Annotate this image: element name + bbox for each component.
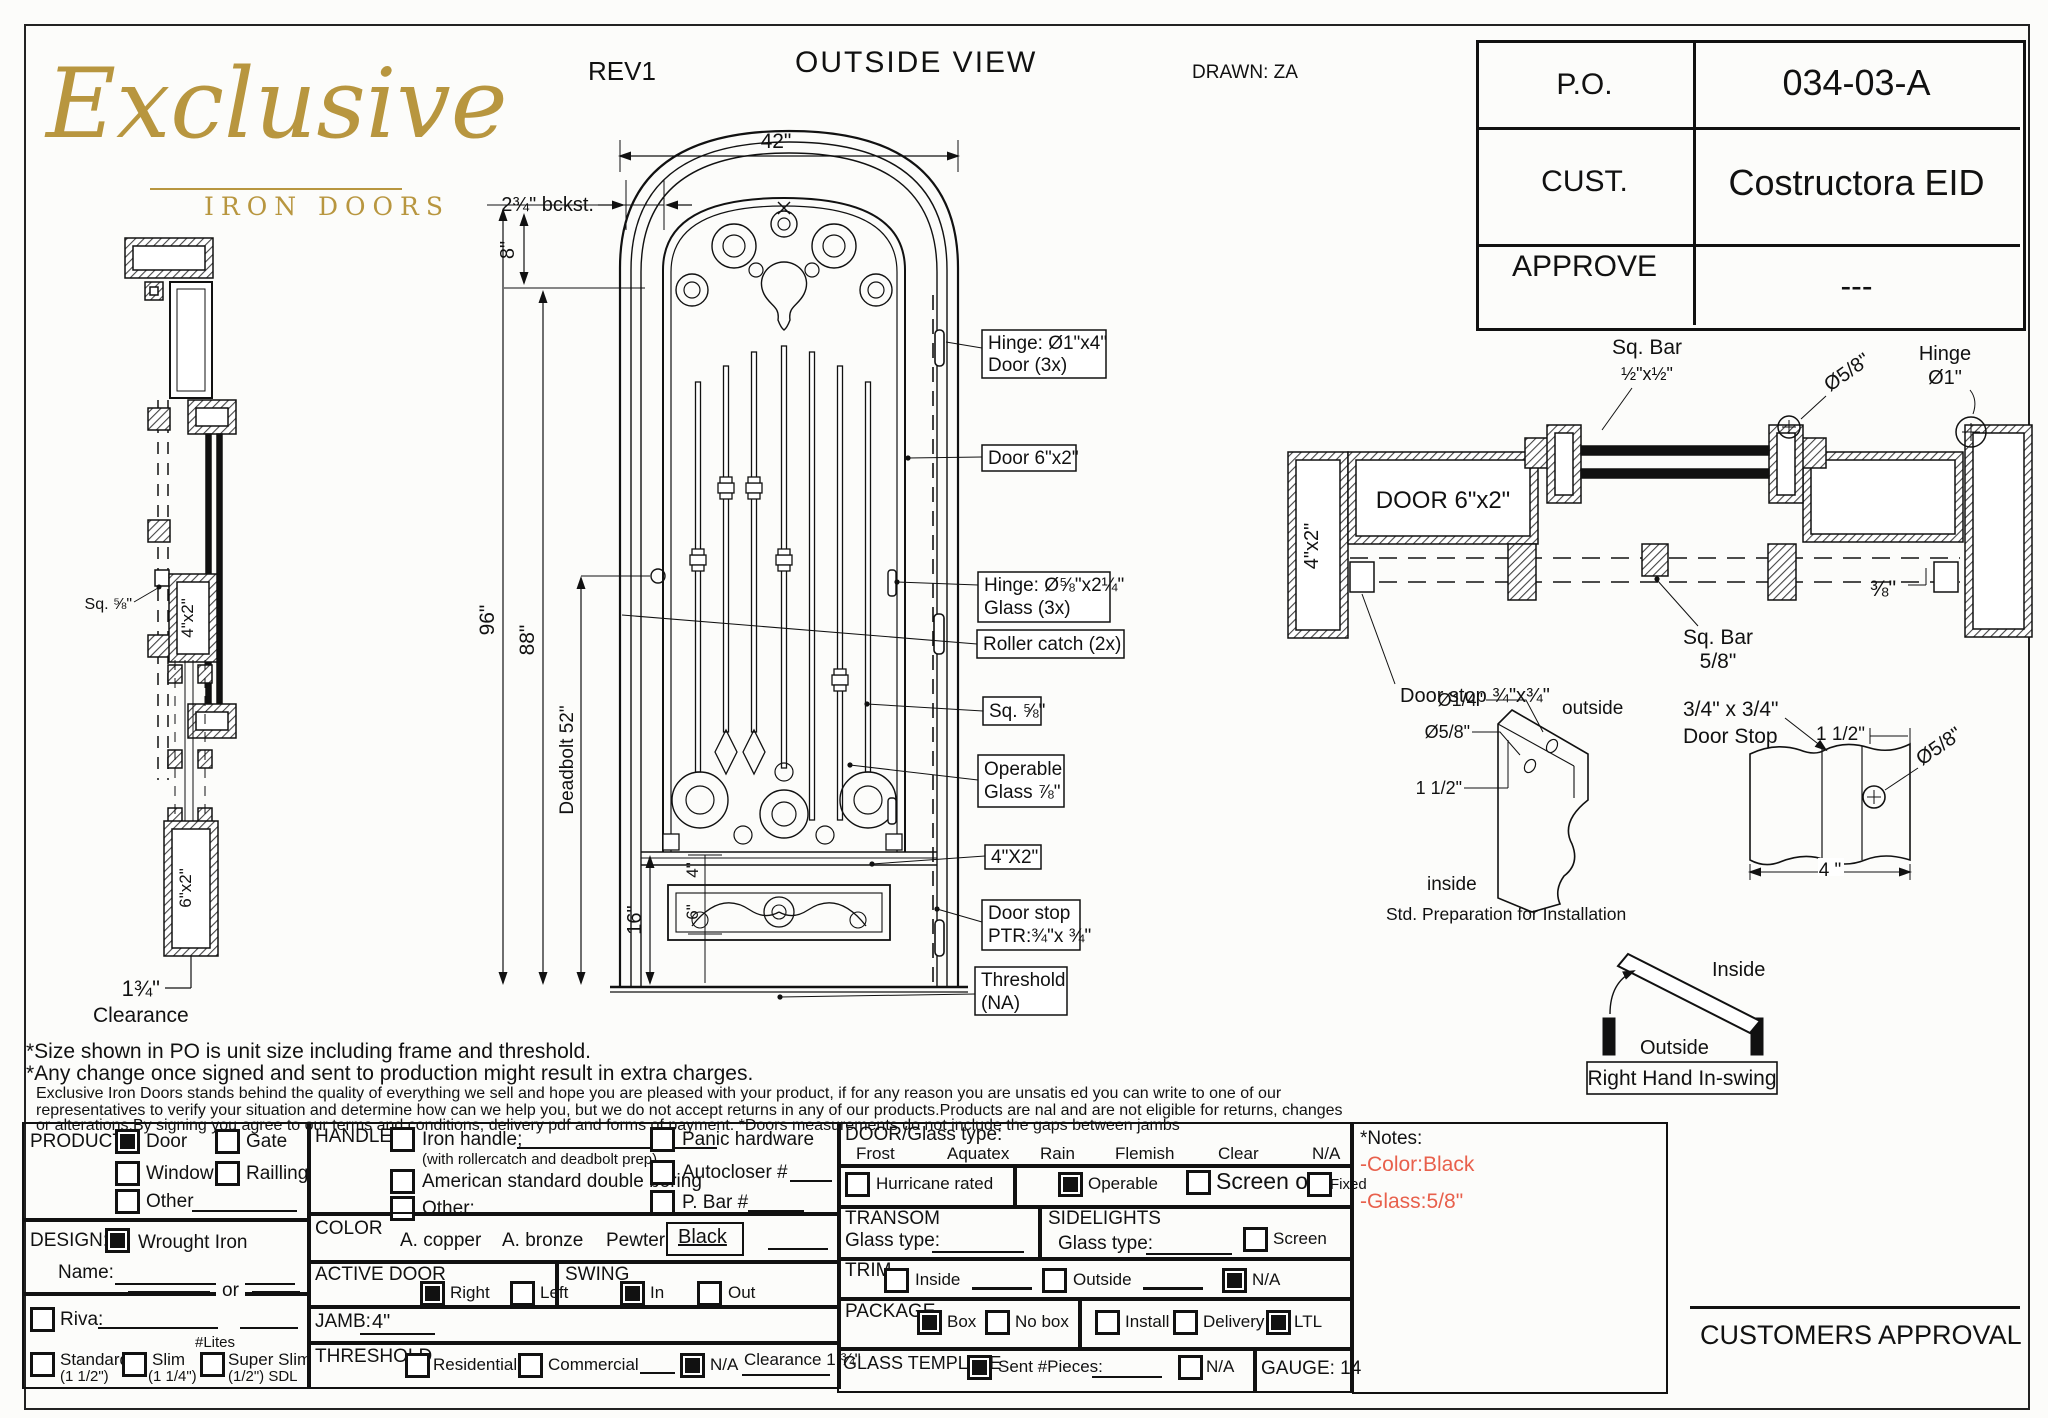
active-right-checkbox[interactable] [420, 1281, 445, 1306]
design-or-label: or [216, 1280, 245, 1302]
product-other-label: Other [146, 1191, 194, 1213]
product-railling-label: Railling [246, 1163, 308, 1185]
section-jamb-label: 4"x2" [1301, 523, 1323, 569]
notes-title: *Notes: [1360, 1128, 1422, 1150]
standard-sub: (1 1/2") [60, 1368, 109, 1385]
jamb-label: JAMB: [315, 1311, 371, 1333]
callout-hinge-glass: Hinge: Ø⅝"x2¼" [984, 575, 1124, 596]
section-sqbar-top-size: ½"x½" [1621, 364, 1673, 384]
jamb-value[interactable]: 4" [372, 1311, 390, 1334]
handle-label: HANDLE [315, 1126, 392, 1148]
product-railling-checkbox[interactable] [215, 1161, 240, 1186]
jamb-line[interactable] [360, 1333, 435, 1335]
design-wrought-checkbox[interactable] [105, 1228, 130, 1253]
section-sqbar-top: Sq. Bar [1612, 336, 1682, 359]
callout-operable-2: Glass ⅞" [984, 782, 1060, 803]
glass-aquatex-option[interactable]: Aquatex [947, 1144, 1009, 1164]
fixed-checkbox[interactable] [1307, 1172, 1332, 1197]
callout-hinge-glass-2: Glass (3x) [984, 598, 1071, 619]
callout-door: Door 6"x2" [988, 448, 1079, 469]
transom-glass-label: Glass type: [845, 1230, 940, 1252]
threshold-na-checkbox[interactable] [680, 1353, 705, 1378]
ltl-checkbox[interactable] [1266, 1310, 1291, 1335]
hurricane-checkbox[interactable] [845, 1172, 870, 1197]
riva-line-2[interactable] [240, 1327, 298, 1329]
ltl-label: LTL [1294, 1312, 1322, 1332]
installation-prep-drawing: Ø1/4" Ø5/8" 1 1/2" outside inside Std. P… [1380, 680, 1660, 930]
callout-operable: Operable [984, 759, 1062, 780]
section-sqbar-bottom-size: 5/8" [1700, 650, 1737, 673]
super-slim-checkbox[interactable] [200, 1352, 225, 1377]
install-label: Install [1125, 1312, 1169, 1332]
color-black-option[interactable]: Black [678, 1226, 727, 1249]
iron-handle-label: Iron handle; [422, 1129, 522, 1151]
package-nobox-label: No box [1015, 1312, 1069, 1332]
design-name-label: Name: [58, 1262, 114, 1284]
logo-subtitle: IRON DOORS [204, 192, 450, 221]
approve-value: --- [1693, 268, 2020, 305]
callout-roller-catch: Roller catch (2x) [983, 634, 1121, 655]
dim-deadbolt: Deadbolt 52" [557, 705, 578, 814]
jamb-profile-drawing: Sq. ⅝" 4"x2" 6"x2" 1¾" Clearance [60, 220, 340, 1060]
delivery-checkbox[interactable] [1173, 1310, 1198, 1335]
disclaimer-line-1: *Size shown in PO is unit size including… [26, 1040, 591, 1064]
template-na-label: N/A [1206, 1357, 1234, 1377]
callout-hinge-door: Hinge: Ø1"x4" [988, 333, 1107, 354]
callout-hinge-door-2: Door (3x) [988, 355, 1067, 376]
sidelights-glass-line[interactable] [1146, 1253, 1232, 1255]
section-hinge: Hinge [1919, 343, 1971, 365]
threshold-commercial-label: Commercial [548, 1355, 639, 1375]
hurricane-label: Hurricane rated [876, 1174, 993, 1194]
glass-flemish-option[interactable]: Flemish [1115, 1144, 1175, 1164]
trim-outside-line[interactable] [1143, 1287, 1203, 1290]
standard-label: Standard [60, 1350, 129, 1370]
design-name-line[interactable] [115, 1283, 295, 1285]
trim-na-checkbox[interactable] [1222, 1268, 1247, 1293]
color-copper-option[interactable]: A. copper [400, 1230, 481, 1252]
callout-rail: 4"X2" [991, 847, 1038, 868]
color-bronze-option[interactable]: A. bronze [502, 1230, 583, 1252]
info-table-hline2 [1476, 244, 2020, 247]
trim-inside-label: Inside [915, 1270, 960, 1290]
info-table-hline1 [1476, 127, 2020, 130]
profile-jamb-label: 4"x2" [178, 598, 197, 637]
notes-color-line: -Color:Black [1360, 1153, 1474, 1177]
design-wrought-label: Wrought Iron [138, 1232, 247, 1254]
dim-8: 8" [497, 241, 519, 259]
glass-rain-option[interactable]: Rain [1040, 1144, 1075, 1164]
iron-handle-checkbox[interactable] [390, 1127, 415, 1152]
swing-in-checkbox[interactable] [620, 1281, 645, 1306]
drawing-sheet: { "colors": {"gold":"#b8963f","note_red"… [0, 0, 2048, 1418]
prep-dim112: 1 1/2" [1416, 778, 1462, 798]
swing-outside-label: Outside [1640, 1037, 1709, 1059]
package-nobox-checkbox[interactable] [985, 1310, 1010, 1335]
product-other-checkbox[interactable] [115, 1189, 140, 1214]
slim-checkbox[interactable] [122, 1352, 147, 1377]
product-window-checkbox[interactable] [115, 1161, 140, 1186]
package-box-label: Box [947, 1312, 976, 1332]
active-left-checkbox[interactable] [510, 1281, 535, 1306]
callout-threshold: Threshold [981, 970, 1066, 991]
autocloser-checkbox[interactable] [650, 1160, 675, 1185]
dim-kick: 6" [683, 904, 702, 920]
dim-88: 88" [516, 625, 539, 656]
logo-script: Exclusive [46, 48, 508, 160]
trim-inside-checkbox[interactable] [884, 1268, 909, 1293]
gauge-value: GAUGE: 14 [1261, 1358, 1361, 1380]
prep-dia58: Ø5/8" [1425, 722, 1470, 742]
dim-96: 96" [476, 605, 499, 636]
disclaimer-line-2: *Any change once signed and sent to prod… [26, 1062, 753, 1086]
riva-line[interactable] [98, 1327, 218, 1329]
swing-out-label: Out [728, 1283, 755, 1303]
swing-out-checkbox[interactable] [697, 1281, 722, 1306]
trim-outside-label: Outside [1073, 1270, 1132, 1290]
super-slim-sub: (1/2") SDL [228, 1368, 298, 1385]
section-dia58: Ø5/8" [1820, 349, 1874, 396]
sidelights-glass-label: Glass type: [1058, 1233, 1153, 1255]
doorstop-dim112: 1 1/2" [1816, 724, 1865, 745]
callout-doorstop: Door stop [988, 903, 1070, 924]
pbar-label: P. Bar # [682, 1192, 748, 1214]
approval-signature-line[interactable] [1690, 1306, 2020, 1309]
door-front-view-drawing: 42" 2¾" bckst. 8" 96" 88" Deadbolt 52" 1… [460, 120, 1140, 1030]
or-line-left [128, 1291, 210, 1294]
product-gate-label: Gate [246, 1131, 287, 1153]
swing-caption: Right Hand In-swing [1587, 1067, 1776, 1090]
color-pewter-option[interactable]: Pewter [606, 1230, 665, 1252]
american-boring-checkbox[interactable] [390, 1169, 415, 1194]
approval-label: CUSTOMERS APPROVAL [1700, 1320, 2022, 1351]
slim-label: Slim [152, 1350, 185, 1370]
transom-label: TRANSOM [845, 1208, 940, 1230]
profile-sq-label: Sq. ⅝" [85, 596, 132, 613]
riva-label: Riva: [60, 1309, 103, 1331]
prep-outside: outside [1562, 698, 1623, 719]
dim-backset: 2¾" bckst. [501, 194, 594, 216]
operable-checkbox[interactable] [1058, 1172, 1083, 1197]
revision-label: REV1 [588, 56, 656, 87]
swing-in-label: In [650, 1283, 664, 1303]
approve-label: APPROVE [1476, 250, 1693, 284]
glass-na-option[interactable]: N/A [1312, 1144, 1340, 1164]
autocloser-line[interactable] [790, 1180, 832, 1182]
threshold-clearance-line [742, 1374, 830, 1376]
dim-kick-gap: 4" [683, 862, 702, 878]
active-right-label: Right [450, 1283, 490, 1303]
glass-frost-option[interactable]: Frost [856, 1144, 895, 1164]
doorstop-title: 3/4" x 3/4" [1683, 698, 1778, 721]
doorstop-dim4: 4 " [1819, 860, 1842, 881]
doorstop-detail-drawing: 3/4" x 3/4" Door Stop 1 1/2" Ø5/8" 4 " [1660, 680, 2040, 890]
trim-na-label: N/A [1252, 1270, 1280, 1290]
disclaimer-line-3: Exclusive Iron Doors stands behind the q… [36, 1085, 1281, 1103]
section-hinge-size: Ø1" [1928, 367, 1962, 389]
cust-value: Costructora EID [1693, 162, 2020, 204]
plan-section-drawing: Sq. Bar ½"x½" Ø5/8" Hinge Ø1" DOOR 6"x2"… [1270, 330, 2040, 720]
panic-hardware-label: Panic hardware [682, 1129, 814, 1151]
screen-or-label: Screen or [1216, 1168, 1316, 1195]
po-value: 034-03-A [1693, 62, 2020, 104]
swing-inside-label: Inside [1712, 959, 1765, 981]
color-other-line[interactable] [768, 1248, 828, 1250]
prep-caption: Std. Preparation for Installation [1386, 904, 1626, 924]
po-label: P.O. [1476, 68, 1693, 102]
logo-underline [150, 188, 402, 190]
sidelights-screen-label: Screen [1273, 1229, 1327, 1249]
product-door-label: Door [146, 1131, 187, 1153]
riva-checkbox[interactable] [30, 1307, 55, 1332]
prep-inside: inside [1427, 874, 1477, 895]
threshold-residential-checkbox[interactable] [405, 1353, 430, 1378]
template-sent-checkbox[interactable] [967, 1355, 992, 1380]
cust-label: CUST. [1476, 165, 1693, 199]
callout-doorstop-2: PTR:¾"x ¾" [988, 926, 1091, 947]
threshold-residential-label: Residential [433, 1355, 517, 1375]
profile-clearance-value: 1¾" [122, 976, 160, 1001]
install-checkbox[interactable] [1095, 1310, 1120, 1335]
template-na-checkbox[interactable] [1178, 1355, 1203, 1380]
callout-sq: Sq. ⅝" [989, 701, 1045, 722]
profile-door-label: 6"x2" [176, 868, 195, 907]
delivery-label: Delivery [1203, 1312, 1264, 1332]
trim-inside-line[interactable] [972, 1287, 1032, 1290]
section-door-label: DOOR 6"x2" [1376, 487, 1510, 514]
product-other-line[interactable] [192, 1210, 297, 1212]
design-label: DESIGN: [30, 1230, 108, 1252]
trim-outside-checkbox[interactable] [1042, 1268, 1067, 1293]
threshold-commercial-checkbox[interactable] [518, 1353, 543, 1378]
doorstop-title-2: Door Stop [1683, 725, 1778, 748]
product-label: PRODUCT: [30, 1131, 127, 1153]
threshold-commercial-line[interactable] [640, 1372, 675, 1374]
product-gate-checkbox[interactable] [215, 1129, 240, 1154]
section-dim38: ⅜" [1870, 576, 1896, 601]
notes-glass-line: -Glass:5/8" [1360, 1190, 1463, 1214]
template-sent-label: Sent #Pieces: [998, 1357, 1103, 1377]
transom-glass-line[interactable] [932, 1251, 1024, 1253]
section-sqbar-bottom: Sq. Bar [1683, 626, 1753, 649]
doorstop-dia58: Ø5/8" [1912, 723, 1966, 770]
prep-dia14: Ø1/4" [1438, 690, 1483, 710]
template-sent-line[interactable] [1092, 1376, 1162, 1378]
super-slim-label: Super Slim [228, 1350, 311, 1370]
glass-type-label: DOOR/Glass type: [845, 1124, 1002, 1146]
sidelights-screen-checkbox[interactable] [1243, 1227, 1268, 1252]
product-window-label: Window [146, 1163, 214, 1185]
threshold-na-label: N/A [710, 1355, 738, 1375]
screen-or-checkbox[interactable] [1186, 1170, 1211, 1195]
or-line-right [252, 1291, 300, 1294]
glass-clear-option[interactable]: Clear [1218, 1144, 1259, 1164]
swing-direction-drawing: Inside Outside Right Hand In-swing [1560, 940, 1820, 1110]
slim-sub: (1 1/4") [148, 1368, 197, 1385]
lites-label: #Lites [195, 1334, 235, 1351]
dim-42: 42" [761, 130, 792, 153]
standard-checkbox[interactable] [30, 1352, 55, 1377]
profile-clearance-label: Clearance [93, 1004, 189, 1027]
color-label: COLOR [315, 1218, 383, 1240]
operable-label: Operable [1088, 1174, 1158, 1194]
package-box-checkbox[interactable] [917, 1310, 942, 1335]
callout-threshold-2: (NA) [981, 993, 1020, 1014]
autocloser-label: Autocloser # [682, 1162, 788, 1184]
iron-handle-sub: (with rollercatch and deadbolt prep) [422, 1151, 657, 1168]
sidelights-label: SIDELIGHTS [1048, 1208, 1161, 1230]
product-door-checkbox[interactable] [115, 1129, 140, 1154]
panic-hardware-checkbox[interactable] [650, 1127, 675, 1152]
dim-16: 16" [624, 905, 646, 934]
drawn-by-label: DRAWN: ZA [1192, 62, 1298, 84]
page-title: OUTSIDE VIEW [795, 46, 1037, 80]
